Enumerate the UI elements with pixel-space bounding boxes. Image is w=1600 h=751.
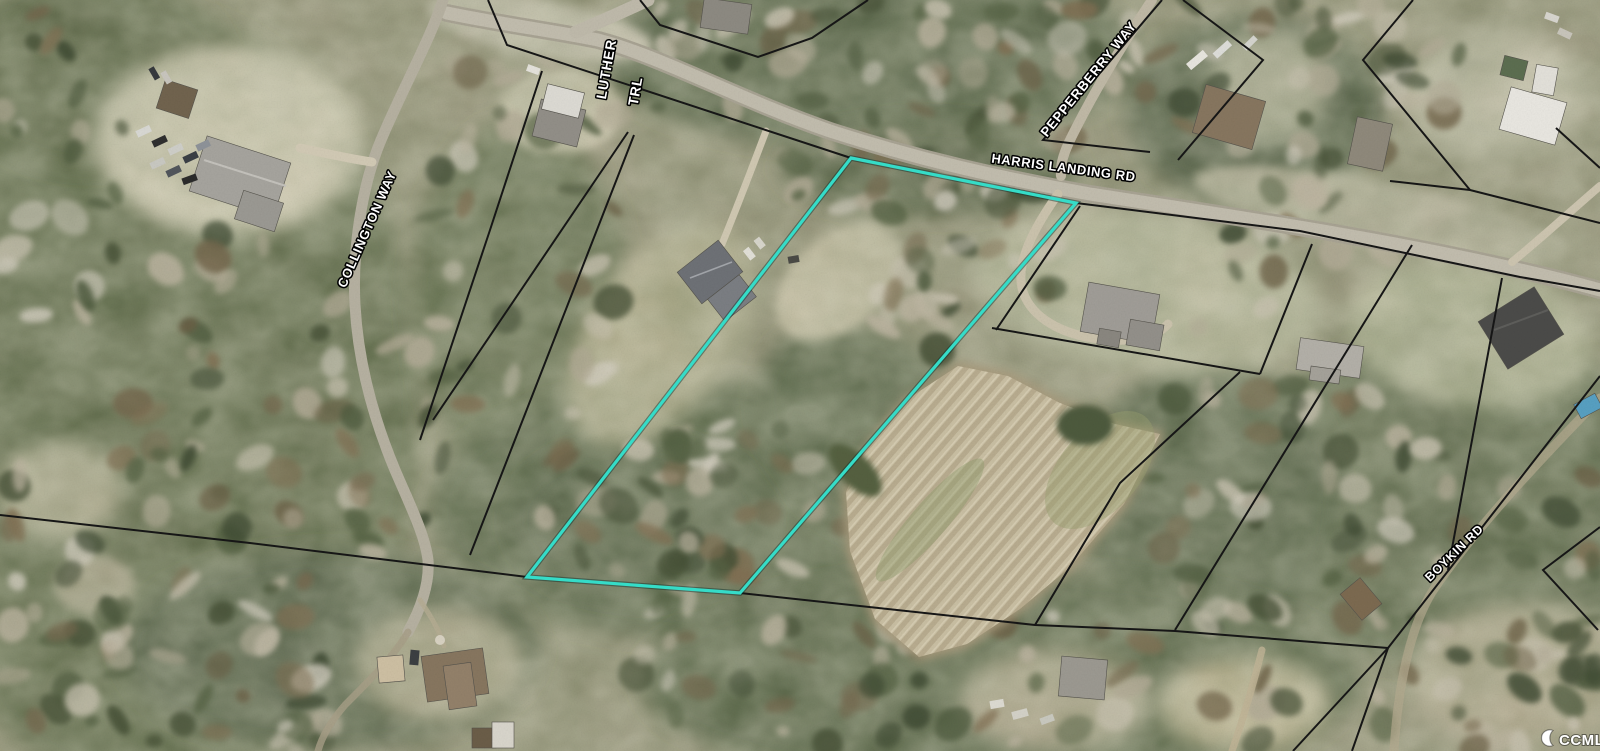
photo-grain: [0, 0, 1600, 751]
watermark: CCMLS: [1541, 730, 1600, 749]
listing-aerial-photo[interactable]: LUTHER TRL PEPPERBERRY WAY HARRIS LANDIN…: [0, 0, 1600, 751]
aerial-map[interactable]: LUTHER TRL PEPPERBERRY WAY HARRIS LANDIN…: [0, 0, 1600, 751]
watermark-text: CCMLS: [1559, 732, 1600, 749]
